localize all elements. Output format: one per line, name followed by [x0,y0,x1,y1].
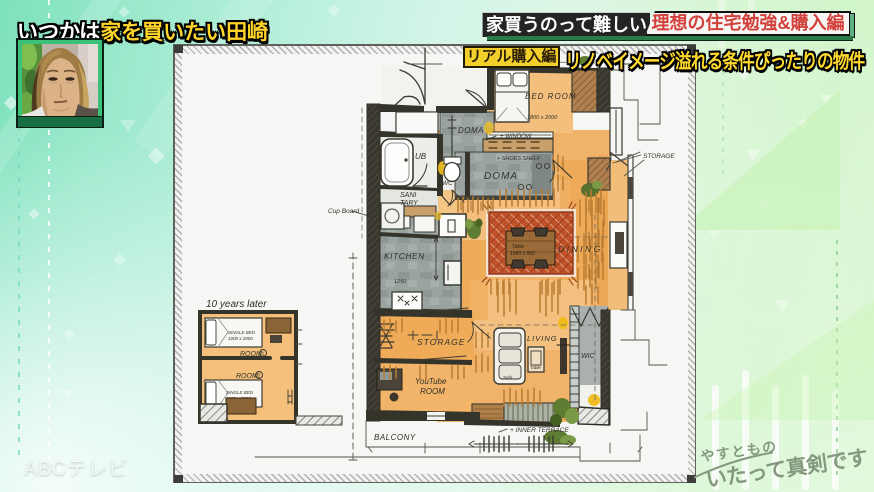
svg-text:DOMA: DOMA [484,171,518,182]
svg-text:BED ROOM: BED ROOM [525,92,577,101]
svg-text:+ SHOES SHELF: + SHOES SHELF [497,156,541,162]
svg-text:WC: WC [442,180,453,187]
svg-text:SANI: SANI [400,192,416,199]
svg-text:2: 2 [258,374,261,380]
svg-text:YouTube: YouTube [415,377,447,386]
svg-text:1250: 1250 [394,279,407,285]
svg-text:Sofa: Sofa [503,375,513,380]
svg-text:WIC: WIC [581,353,596,360]
svg-text:1800 x 2000: 1800 x 2000 [527,115,558,121]
svg-text:1680 x 850: 1680 x 850 [510,251,535,257]
svg-text:SINGLE BED: SINGLE BED [228,330,256,335]
svg-text:10 years later: 10 years later [206,299,267,310]
svg-text:LIVING: LIVING [527,334,558,343]
svg-text:ROOM: ROOM [236,373,258,380]
svg-text:STORAGE: STORAGE [417,337,465,347]
svg-text:ROOM: ROOM [420,387,445,396]
svg-text:Table: Table [530,365,541,370]
svg-text:DOMA: DOMA [458,126,484,135]
svg-text:BALCONY: BALCONY [374,433,416,442]
svg-text:Table: Table [512,244,524,250]
svg-text:KITCHEN: KITCHEN [384,251,425,261]
svg-text:+ WINDOW: + WINDOW [500,134,533,140]
svg-text:TARY: TARY [400,200,419,207]
svg-text:1000 x 2000: 1000 x 2000 [228,336,253,341]
svg-text:SINGLE BED: SINGLE BED [226,390,254,395]
svg-text:STORAGE: STORAGE [643,153,675,160]
svg-text:+ INNER TERRACE: + INNER TERRACE [510,427,569,434]
svg-text:DINING: DINING [558,244,603,254]
svg-text:UB: UB [415,152,427,161]
